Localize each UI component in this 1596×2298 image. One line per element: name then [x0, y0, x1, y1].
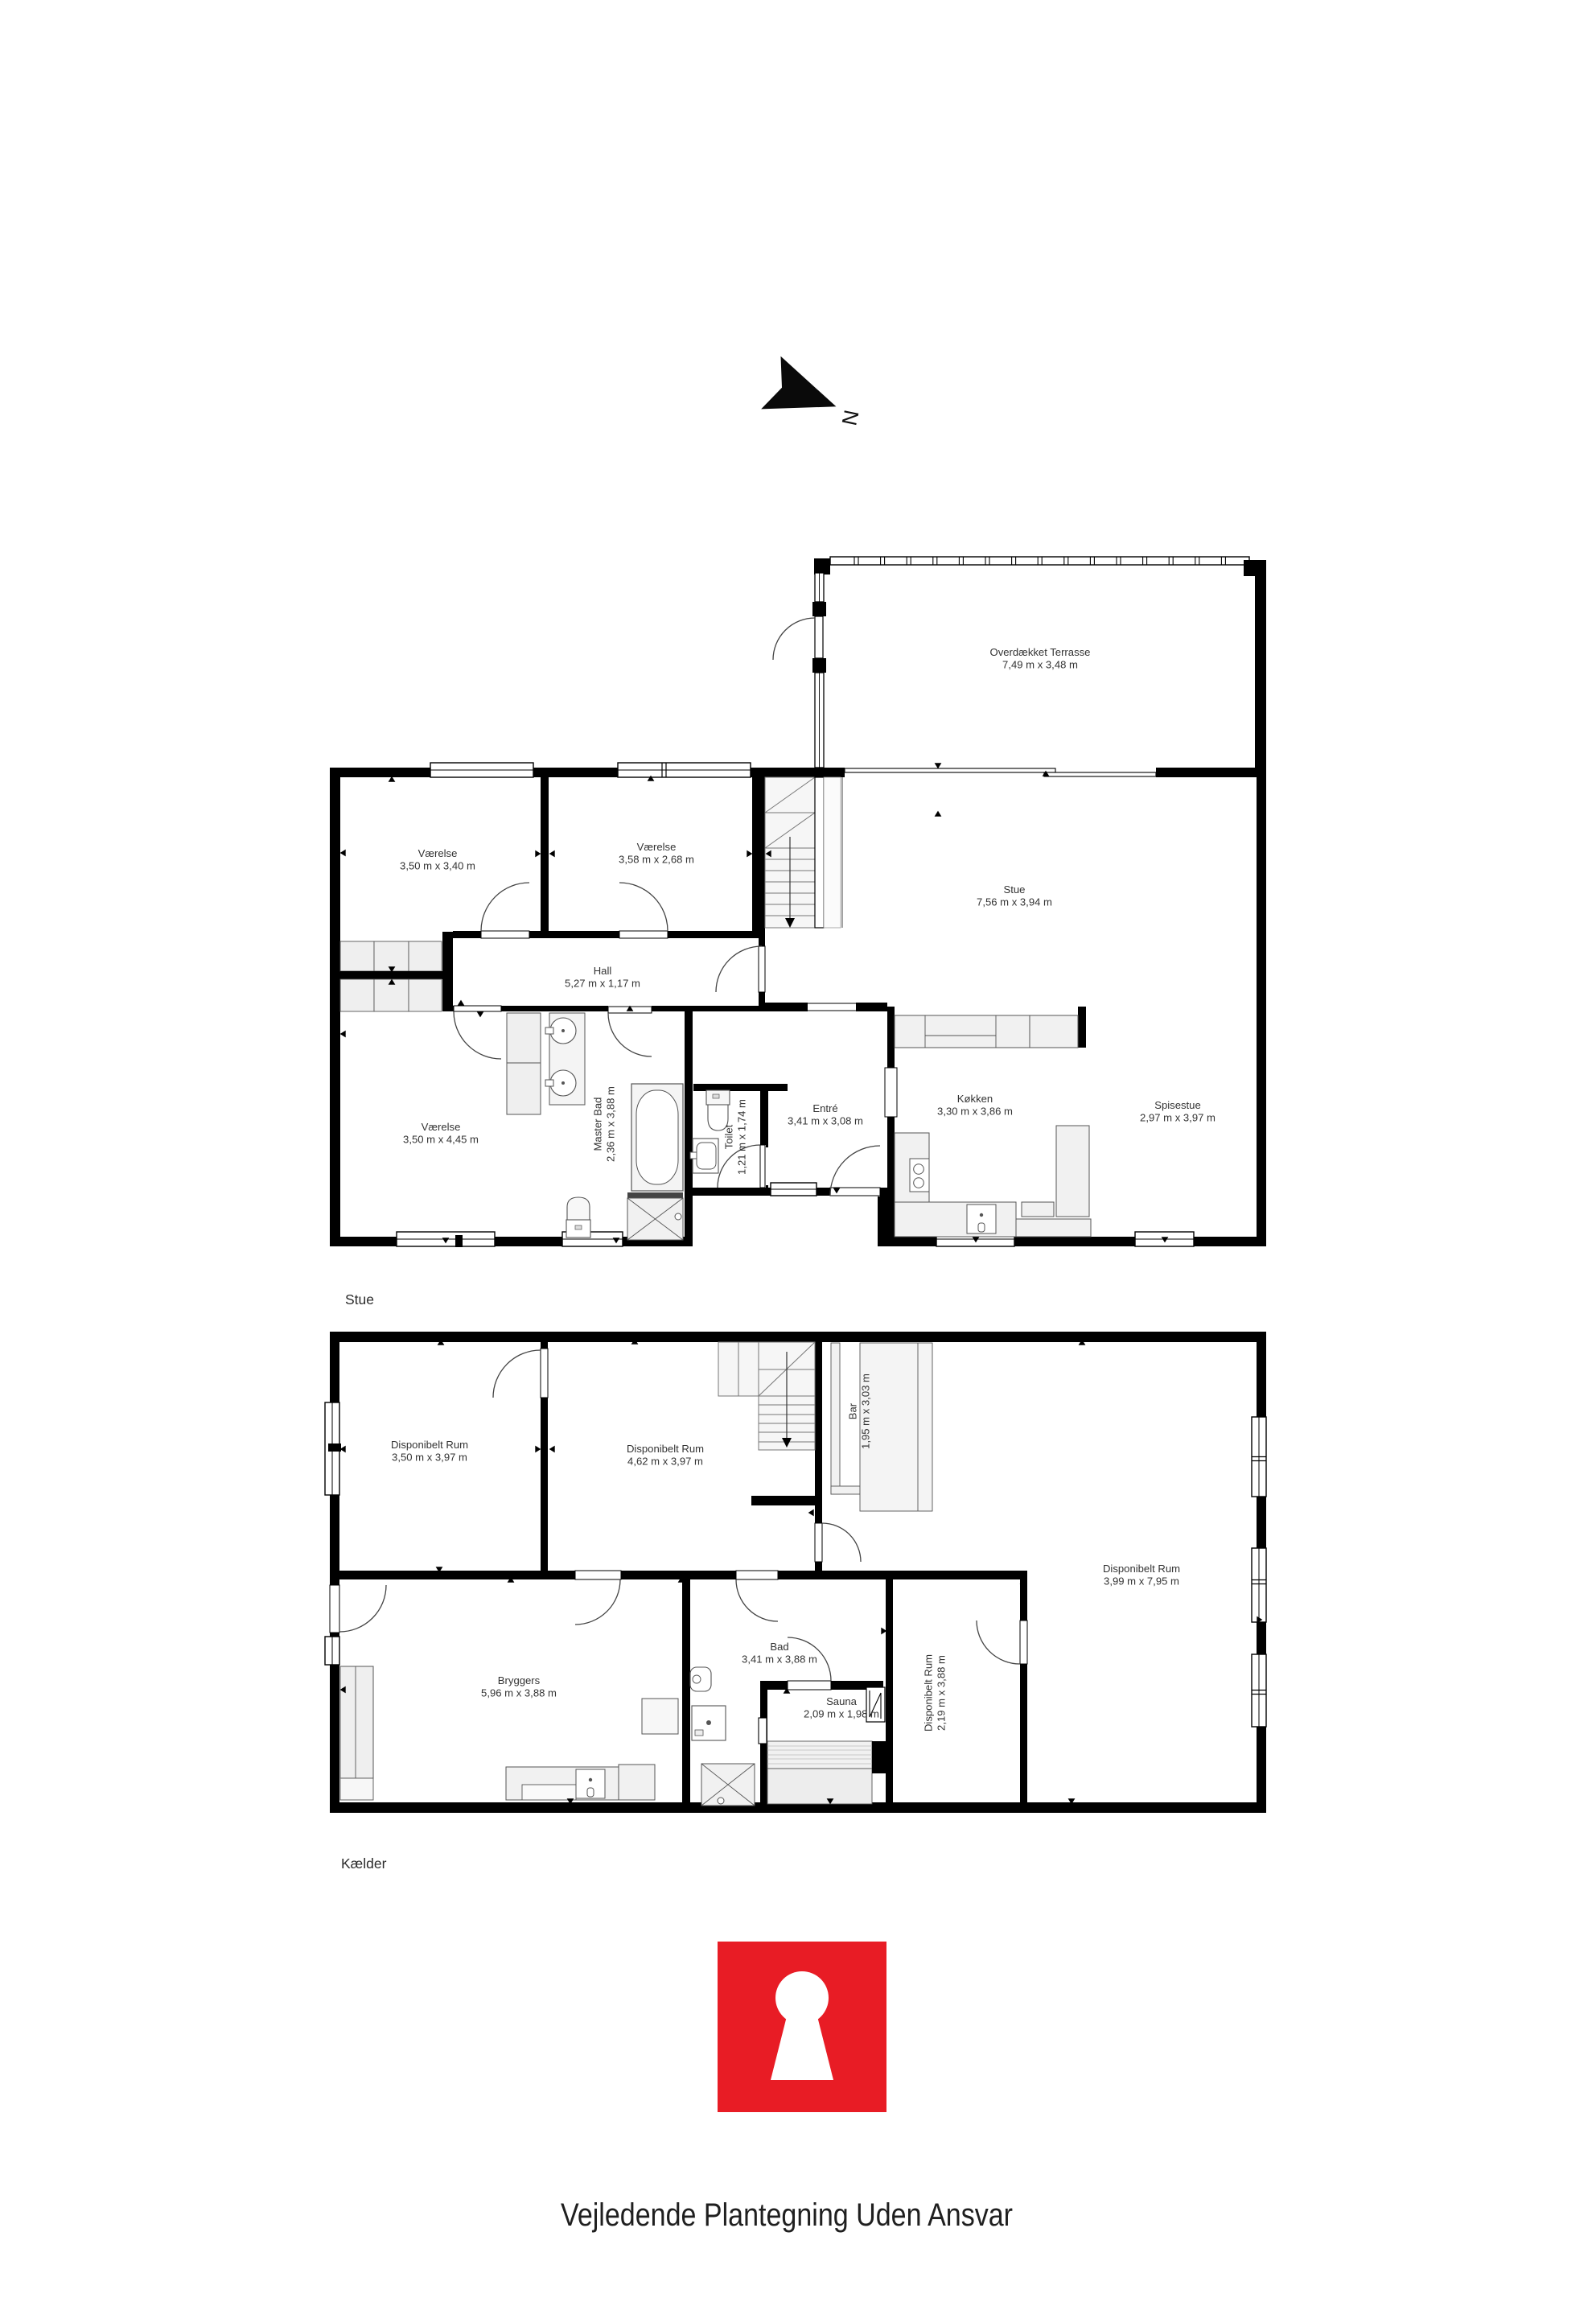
svg-text:Sauna: Sauna [826, 1695, 858, 1707]
svg-text:Bryggers: Bryggers [498, 1674, 541, 1686]
svg-text:1,21 m x 1,74 m: 1,21 m x 1,74 m [735, 1099, 747, 1175]
svg-text:Værelse: Værelse [422, 1121, 461, 1133]
svg-text:3,41 m x 3,88 m: 3,41 m x 3,88 m [742, 1653, 817, 1665]
svg-text:Overdækket Terrasse: Overdækket Terrasse [990, 646, 1091, 658]
svg-text:2,36 m x 3,88 m: 2,36 m x 3,88 m [604, 1086, 616, 1162]
svg-text:Toilet: Toilet [723, 1124, 735, 1149]
svg-text:7,56 m x 3,94 m: 7,56 m x 3,94 m [977, 896, 1052, 908]
svg-text:3,50 m x 3,97 m: 3,50 m x 3,97 m [392, 1451, 467, 1463]
svg-text:2,19 m x 3,88 m: 2,19 m x 3,88 m [935, 1655, 947, 1731]
svg-text:Vejledende Plantegning Uden An: Vejledende Plantegning Uden Ansvar [561, 2197, 1013, 2233]
svg-text:Køkken: Køkken [957, 1093, 993, 1105]
svg-text:Kælder: Kælder [341, 1855, 387, 1872]
svg-text:3,58 m x 2,68 m: 3,58 m x 2,68 m [619, 853, 694, 865]
svg-text:Master Bad: Master Bad [592, 1098, 604, 1151]
svg-text:3,30 m x 3,86 m: 3,30 m x 3,86 m [937, 1105, 1013, 1117]
svg-text:2,09 m x 1,98 m: 2,09 m x 1,98 m [804, 1707, 879, 1719]
svg-text:Værelse: Værelse [418, 847, 458, 859]
svg-text:Bad: Bad [770, 1641, 788, 1653]
svg-text:1,95 m x 3,03 m: 1,95 m x 3,03 m [859, 1373, 871, 1449]
svg-text:Disponibelt Rum: Disponibelt Rum [1103, 1563, 1180, 1575]
svg-text:5,96 m x 3,88 m: 5,96 m x 3,88 m [481, 1686, 557, 1699]
svg-text:Hall: Hall [594, 965, 612, 977]
svg-text:7,49 m x 3,48 m: 7,49 m x 3,48 m [1002, 658, 1078, 670]
svg-text:Værelse: Værelse [637, 841, 677, 853]
svg-text:Spisestue: Spisestue [1154, 1099, 1201, 1111]
svg-text:4,62 m x 3,97 m: 4,62 m x 3,97 m [627, 1455, 703, 1467]
svg-text:2,97 m x 3,97 m: 2,97 m x 3,97 m [1140, 1111, 1216, 1123]
svg-text:Stue: Stue [1004, 883, 1026, 896]
svg-text:3,50 m x 4,45 m: 3,50 m x 4,45 m [403, 1133, 479, 1145]
svg-text:Entré: Entré [812, 1102, 837, 1114]
svg-text:3,50 m x 3,40 m: 3,50 m x 3,40 m [400, 859, 475, 871]
svg-text:Disponibelt Rum: Disponibelt Rum [923, 1654, 935, 1732]
svg-text:Disponibelt Rum: Disponibelt Rum [627, 1443, 704, 1455]
svg-text:Bar: Bar [847, 1402, 859, 1419]
svg-text:5,27 m x 1,17 m: 5,27 m x 1,17 m [565, 977, 640, 989]
svg-text:Stue: Stue [345, 1291, 374, 1308]
svg-text:Disponibelt Rum: Disponibelt Rum [391, 1439, 468, 1451]
svg-text:3,99 m x 7,95 m: 3,99 m x 7,95 m [1104, 1575, 1179, 1587]
svg-text:3,41 m x 3,08 m: 3,41 m x 3,08 m [788, 1114, 863, 1126]
